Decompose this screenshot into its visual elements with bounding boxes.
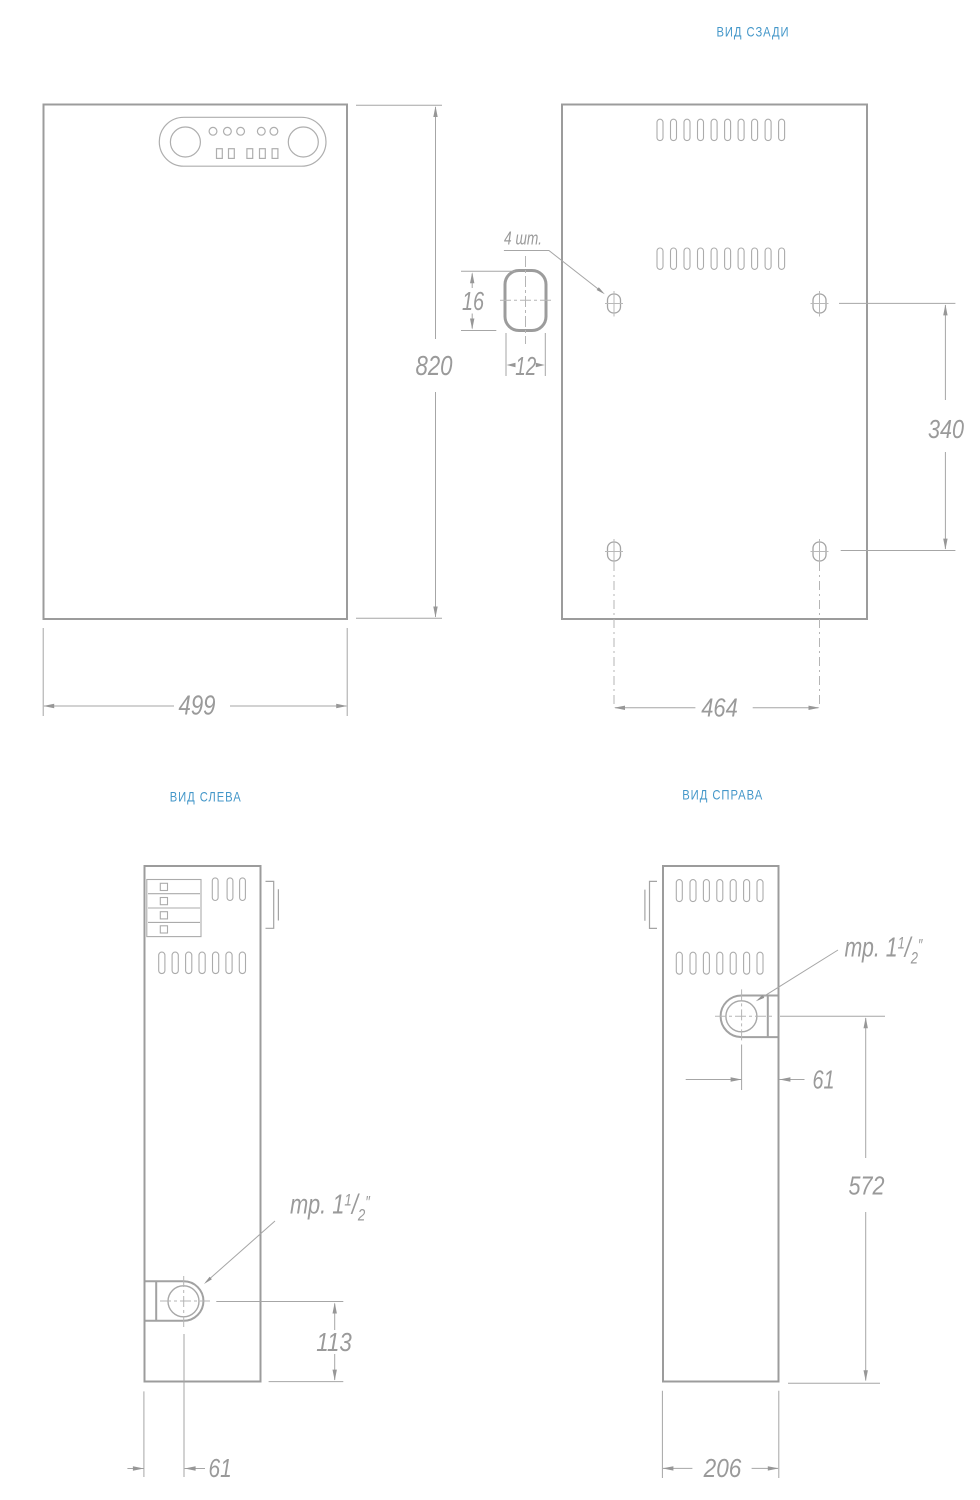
svg-text:12: 12 xyxy=(515,351,536,381)
svg-text:61: 61 xyxy=(813,1065,835,1095)
svg-text:572: 572 xyxy=(849,1171,885,1201)
svg-text:ВИД СПРАВА: ВИД СПРАВА xyxy=(682,787,763,803)
svg-text:16: 16 xyxy=(462,286,484,316)
svg-text:ВИД СЗАДИ: ВИД СЗАДИ xyxy=(717,24,790,40)
svg-text:206: 206 xyxy=(703,1453,742,1483)
svg-text:тр. 11/2″: тр. 11/2″ xyxy=(845,932,924,968)
svg-text:ВИД СЛЕВА: ВИД СЛЕВА xyxy=(170,789,242,805)
svg-text:113: 113 xyxy=(316,1327,352,1357)
svg-text:499: 499 xyxy=(179,690,216,721)
svg-text:464: 464 xyxy=(701,693,738,723)
svg-text:4 шт.: 4 шт. xyxy=(504,228,542,249)
svg-text:61: 61 xyxy=(209,1453,232,1483)
svg-text:820: 820 xyxy=(416,350,453,381)
svg-text:тр. 11/2″: тр. 11/2″ xyxy=(290,1189,371,1225)
svg-text:340: 340 xyxy=(928,414,964,444)
